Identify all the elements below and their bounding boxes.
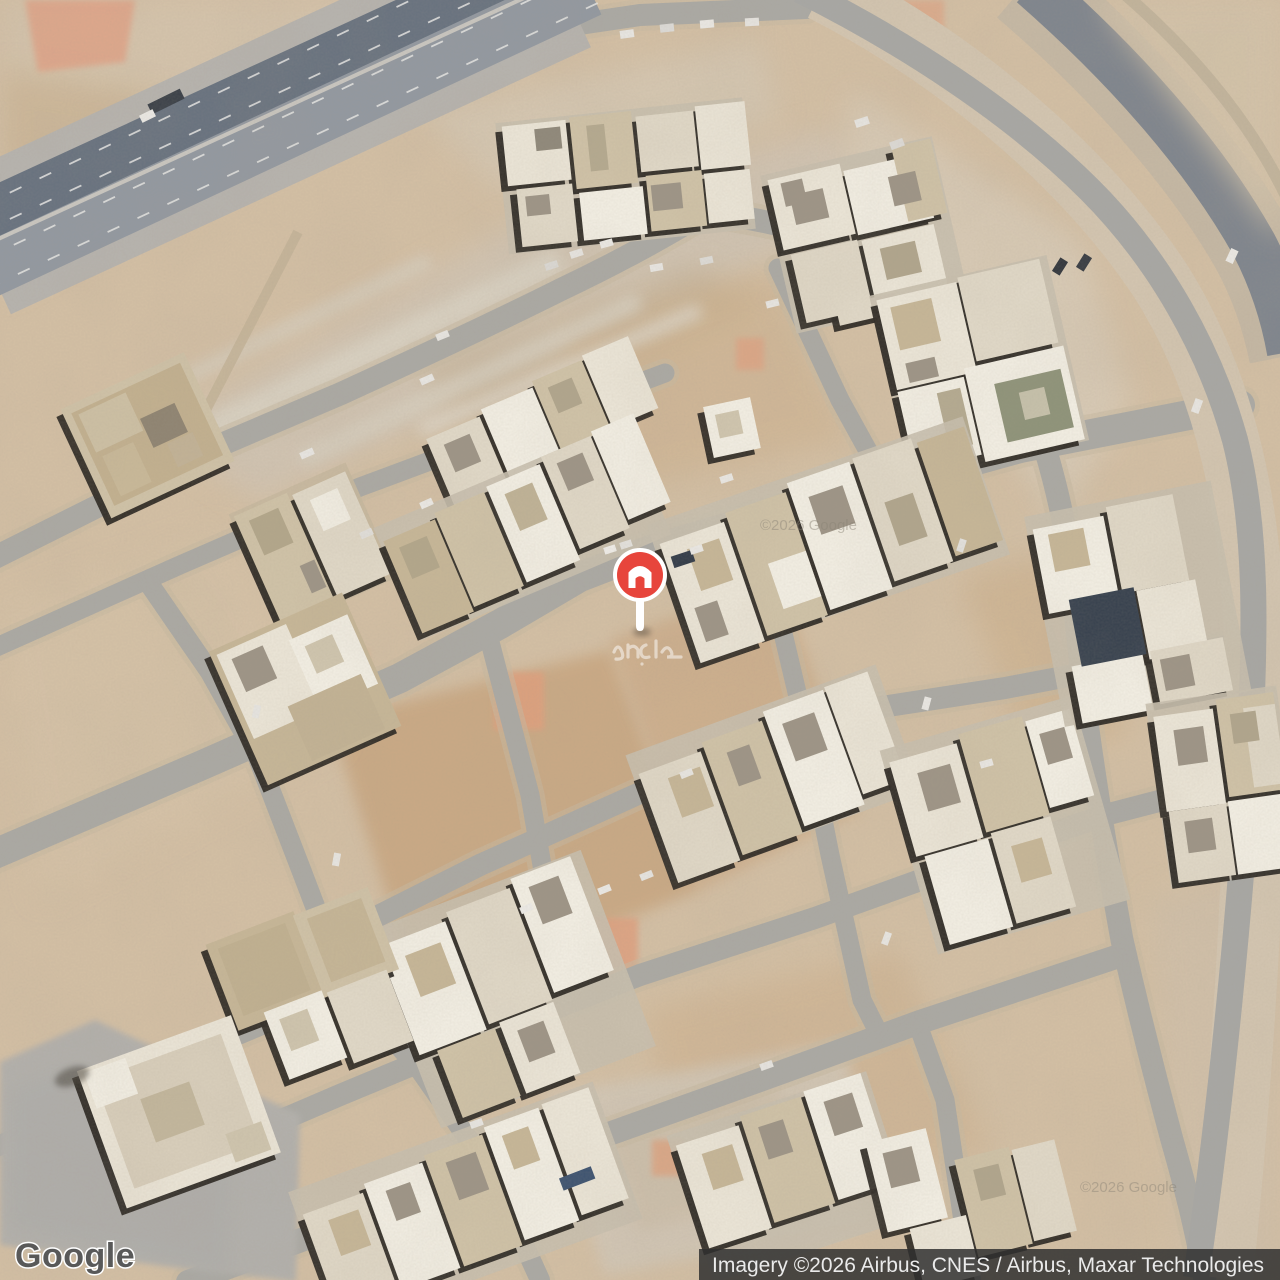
svg-text:©2026 Google: ©2026 Google	[760, 517, 857, 534]
svg-text:©2026 Google: ©2026 Google	[1080, 1179, 1177, 1196]
svg-text:Imagery ©2026 Airbus, CNES / A: Imagery ©2026 Airbus, CNES / Airbus, Max…	[712, 1254, 1264, 1277]
svg-text:Google: Google	[15, 1237, 135, 1275]
